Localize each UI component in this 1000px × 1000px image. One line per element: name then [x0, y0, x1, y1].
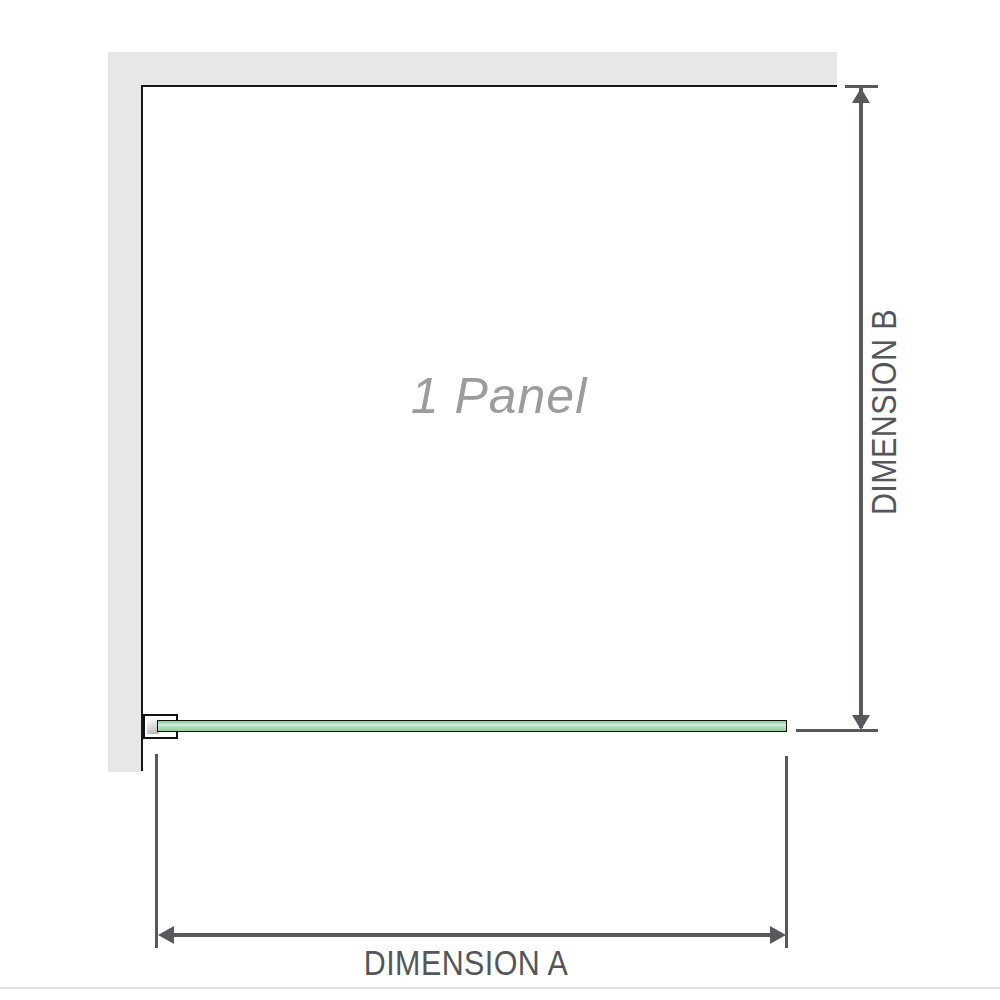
panel-count-label: 1 Panel — [411, 367, 588, 425]
dimension-a-label: DIMENSION A — [364, 943, 568, 983]
dimension-b-bottom-extension-line — [796, 729, 878, 732]
dimension-b-label: DIMENSION B — [864, 309, 904, 515]
dimension-b-line — [859, 88, 863, 728]
wall-top — [108, 52, 837, 85]
dimension-a-arrow-right-icon — [770, 926, 786, 944]
dimension-diagram: 1 Panel DIMENSION B DIMENSION A — [0, 0, 1000, 1000]
dimension-a-right-extension-line — [785, 756, 788, 948]
dimension-a-line — [163, 933, 781, 937]
dimension-b-arrow-up-icon — [852, 88, 870, 103]
wall-left — [108, 52, 141, 772]
dimension-b-arrow-down-icon — [852, 715, 870, 730]
glass-panel — [157, 720, 787, 732]
dimension-a-left-extension-line — [155, 754, 158, 948]
dimension-a-arrow-left-icon — [158, 926, 174, 944]
bottom-divider — [0, 987, 1000, 989]
